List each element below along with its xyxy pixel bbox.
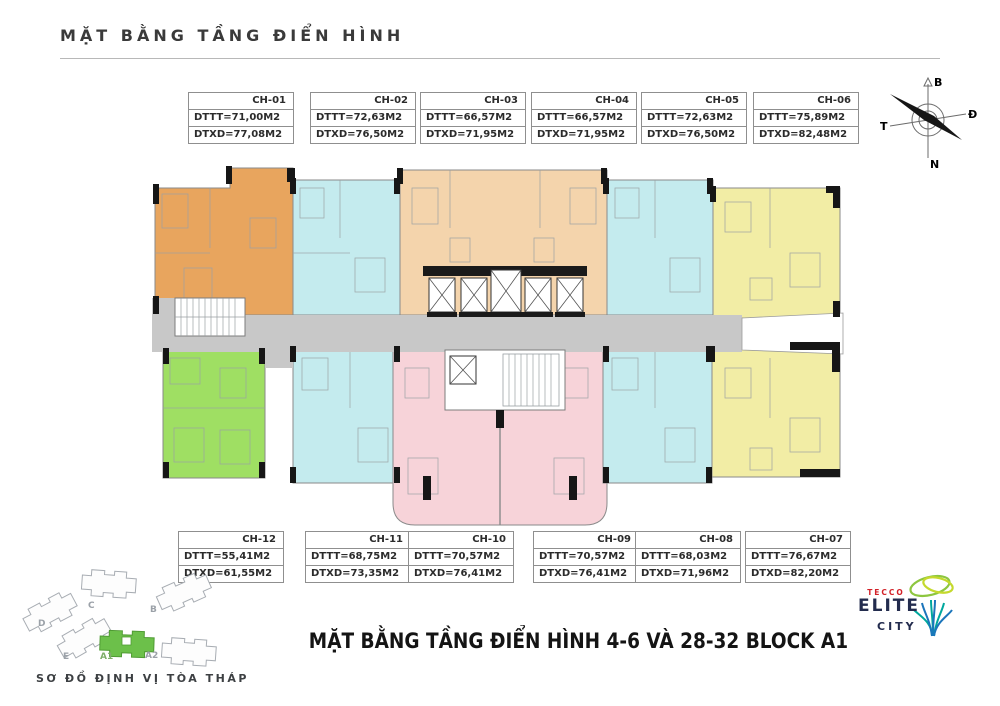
unit-card-ch-06: CH-06 DTTT=75,89M2 DTXD=82,48M2 bbox=[753, 92, 859, 144]
unit-id: CH-05 bbox=[642, 93, 746, 109]
unit-card-ch-02: CH-02 DTTT=72,63M2 DTXD=76,50M2 bbox=[310, 92, 416, 144]
stair-core-bottom bbox=[445, 350, 565, 410]
compass-south-label: N bbox=[930, 158, 939, 171]
unit-dttt: DTTT=68,75M2 bbox=[306, 548, 410, 565]
site-label-b: B bbox=[150, 605, 157, 615]
unit-id: CH-11 bbox=[306, 532, 410, 548]
plan-subtitle: MẶT BẰNG TẦNG ĐIỂN HÌNH 4-6 VÀ 28-32 BLO… bbox=[309, 629, 731, 653]
apartment-ch-02 bbox=[293, 180, 400, 315]
site-label-a2: A2 bbox=[145, 651, 158, 661]
logo-name-line2: CITY bbox=[877, 620, 917, 633]
compass-east-label: Đ bbox=[968, 108, 977, 121]
unit-card-ch-08: CH-08 DTTT=68,03M2 DTXD=71,96M2 bbox=[635, 531, 741, 583]
unit-id: CH-01 bbox=[189, 93, 293, 109]
site-label-d: D bbox=[38, 619, 45, 629]
unit-dttt: DTTT=70,57M2 bbox=[409, 548, 513, 565]
unit-dttt: DTTT=75,89M2 bbox=[754, 109, 858, 126]
header-divider bbox=[60, 58, 940, 59]
site-block-b bbox=[154, 569, 214, 615]
apartment-ch-08 bbox=[603, 348, 712, 483]
unit-card-ch-01: CH-01 DTTT=71,00M2 DTXD=77,08M2 bbox=[188, 92, 294, 144]
unit-dttt: DTTT=71,00M2 bbox=[189, 109, 293, 126]
unit-dtxd: DTXD=71,95M2 bbox=[421, 126, 525, 143]
apartment-ch-11 bbox=[293, 348, 400, 483]
unit-card-ch-09: CH-09 DTTT=70,57M2 DTXD=76,41M2 bbox=[533, 531, 639, 583]
compass-west-label: T bbox=[880, 120, 888, 133]
unit-id: CH-03 bbox=[421, 93, 525, 109]
site-label-c: C bbox=[88, 601, 95, 611]
unit-dtxd: DTXD=71,95M2 bbox=[532, 126, 636, 143]
unit-card-ch-07: CH-07 DTTT=76,67M2 DTXD=82,20M2 bbox=[745, 531, 851, 583]
unit-dttt: DTTT=68,03M2 bbox=[636, 548, 740, 565]
unit-id: CH-12 bbox=[179, 532, 283, 548]
floor-plan bbox=[150, 158, 880, 530]
unit-dtxd: DTXD=73,35M2 bbox=[306, 565, 410, 582]
unit-dtxd: DTXD=76,41M2 bbox=[409, 565, 513, 582]
unit-dtxd: DTXD=71,96M2 bbox=[636, 565, 740, 582]
site-map bbox=[16, 563, 231, 675]
unit-id: CH-07 bbox=[746, 532, 850, 548]
stair-core-left bbox=[175, 298, 245, 336]
unit-dtxd: DTXD=82,20M2 bbox=[746, 565, 850, 582]
logo-name-line1: ELITE bbox=[858, 596, 920, 616]
unit-dttt: DTTT=66,57M2 bbox=[532, 109, 636, 126]
unit-card-ch-10: CH-10 DTTT=70,57M2 DTXD=76,41M2 bbox=[408, 531, 514, 583]
unit-dttt: DTTT=72,63M2 bbox=[642, 109, 746, 126]
unit-card-ch-11: CH-11 DTTT=68,75M2 DTXD=73,35M2 bbox=[305, 531, 411, 583]
site-label-a1: A1 bbox=[100, 652, 113, 662]
unit-dttt: DTTT=70,57M2 bbox=[534, 548, 638, 565]
unit-id: CH-06 bbox=[754, 93, 858, 109]
site-block-d bbox=[20, 588, 80, 636]
unit-dttt: DTTT=66,57M2 bbox=[421, 109, 525, 126]
site-block-c bbox=[81, 569, 137, 599]
elevator-bank bbox=[423, 266, 587, 317]
floorplan-poster: MẶT BẰNG TẦNG ĐIỂN HÌNH CH-01 DTTT=71,00… bbox=[0, 0, 1000, 706]
unit-dttt: DTTT=76,67M2 bbox=[746, 548, 850, 565]
apartment-ch-07 bbox=[712, 348, 840, 477]
site-block-a1-core bbox=[122, 637, 131, 645]
page-title: MẶT BẰNG TẦNG ĐIỂN HÌNH bbox=[60, 26, 404, 45]
unit-card-ch-04: CH-04 DTTT=66,57M2 DTXD=71,95M2 bbox=[531, 92, 637, 144]
unit-id: CH-09 bbox=[534, 532, 638, 548]
unit-card-ch-05: CH-05 DTTT=72,63M2 DTXD=76,50M2 bbox=[641, 92, 747, 144]
unit-dtxd: DTXD=82,48M2 bbox=[754, 126, 858, 143]
site-block-a2 bbox=[161, 637, 217, 667]
site-label-e: E bbox=[63, 652, 69, 662]
unit-id: CH-02 bbox=[311, 93, 415, 109]
apartment-ch-01 bbox=[155, 168, 293, 315]
unit-id: CH-04 bbox=[532, 93, 636, 109]
unit-dtxd: DTXD=76,50M2 bbox=[311, 126, 415, 143]
unit-id: CH-08 bbox=[636, 532, 740, 548]
unit-dttt: DTTT=72,63M2 bbox=[311, 109, 415, 126]
unit-dtxd: DTXD=77,08M2 bbox=[189, 126, 293, 143]
compass: B Đ N T bbox=[880, 68, 980, 173]
apartment-ch-06 bbox=[713, 188, 840, 318]
apartment-ch-05 bbox=[607, 180, 713, 315]
compass-north-label: B bbox=[934, 76, 942, 89]
unit-dtxd: DTXD=76,41M2 bbox=[534, 565, 638, 582]
site-map-caption: SƠ ĐỒ ĐỊNH VỊ TÒA THÁP bbox=[36, 672, 249, 685]
unit-id: CH-10 bbox=[409, 532, 513, 548]
unit-dtxd: DTXD=76,50M2 bbox=[642, 126, 746, 143]
compass-needle bbox=[890, 94, 962, 140]
unit-card-ch-03: CH-03 DTTT=66,57M2 DTXD=71,95M2 bbox=[420, 92, 526, 144]
